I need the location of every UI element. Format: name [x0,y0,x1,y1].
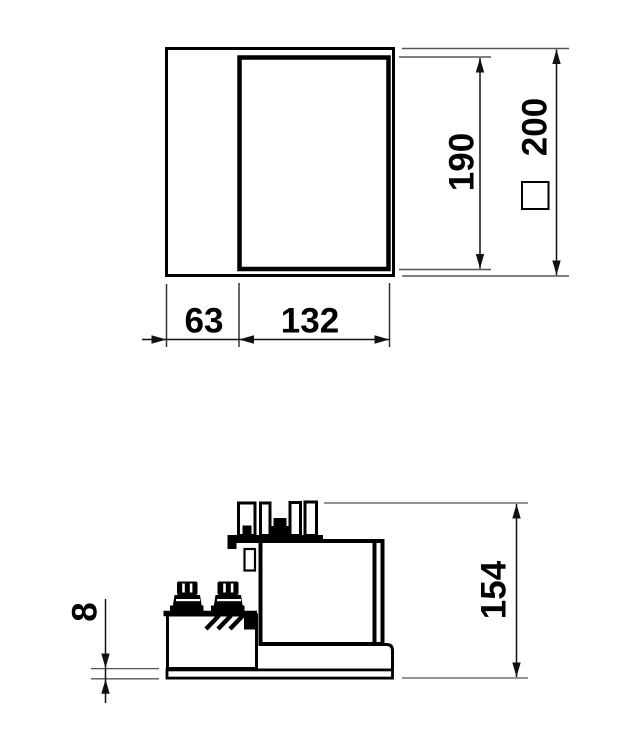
arrowhead-down-icon [552,261,560,276]
dim-8-label: 8 [66,602,105,621]
arrowhead-right-icon [375,335,390,343]
side-view [164,502,393,678]
technical-drawing-sheet: 190 200 63 132 [0,0,622,756]
dim-190: 190 [399,57,491,270]
connector-bridge [270,526,290,536]
arrowhead-up-icon [552,50,560,65]
knob-cap-slit [231,584,234,593]
arrowhead-up-icon [476,58,484,73]
knob-cap [177,582,198,596]
mounting-clip [245,549,256,571]
knob-body-slit [176,599,200,601]
knob-cap-slit [190,584,193,593]
dim-63-label: 63 [185,302,224,341]
mounting-hook [228,535,247,549]
inner-frame-outline [240,58,389,270]
arrowhead-down-icon [476,254,484,269]
dim-63-132: 63 132 [142,283,390,347]
pedestal-step-outline [383,645,393,670]
base-plate-strip [167,670,393,678]
top-view [167,49,394,276]
valve-knob [211,582,245,612]
connector-terminal [261,503,271,536]
knob-flange [211,606,245,612]
dim-200-label: 200 [516,98,555,156]
knob-cap [218,582,239,596]
arrowhead-down-icon [512,663,520,678]
connector-terminal [290,503,301,536]
connector-terminal [305,502,317,536]
dim-154-label: 154 [475,560,514,619]
arrowhead-right-icon [152,335,167,343]
dim-190-label: 190 [443,133,482,191]
square-section-symbol-icon [522,182,549,209]
connector-bridge-upper [274,518,287,527]
dim-8: 8 [66,599,160,703]
arrowhead-down-icon [101,654,109,669]
dim-200: 200 [402,49,569,277]
connector-terminal-insert [243,526,252,536]
knob-cap-slit [182,584,185,593]
knob-body-slit [217,599,241,601]
arrowhead-up-icon [101,679,109,694]
hatch-block [244,617,255,630]
knob-flange [170,606,204,612]
housing-outline [261,541,383,644]
arrowhead-up-icon [512,504,520,519]
knob-cap-slit [223,584,226,593]
dim-132-label: 132 [281,302,339,341]
valve-knob [170,582,204,612]
arrowhead-left-icon [239,335,254,343]
